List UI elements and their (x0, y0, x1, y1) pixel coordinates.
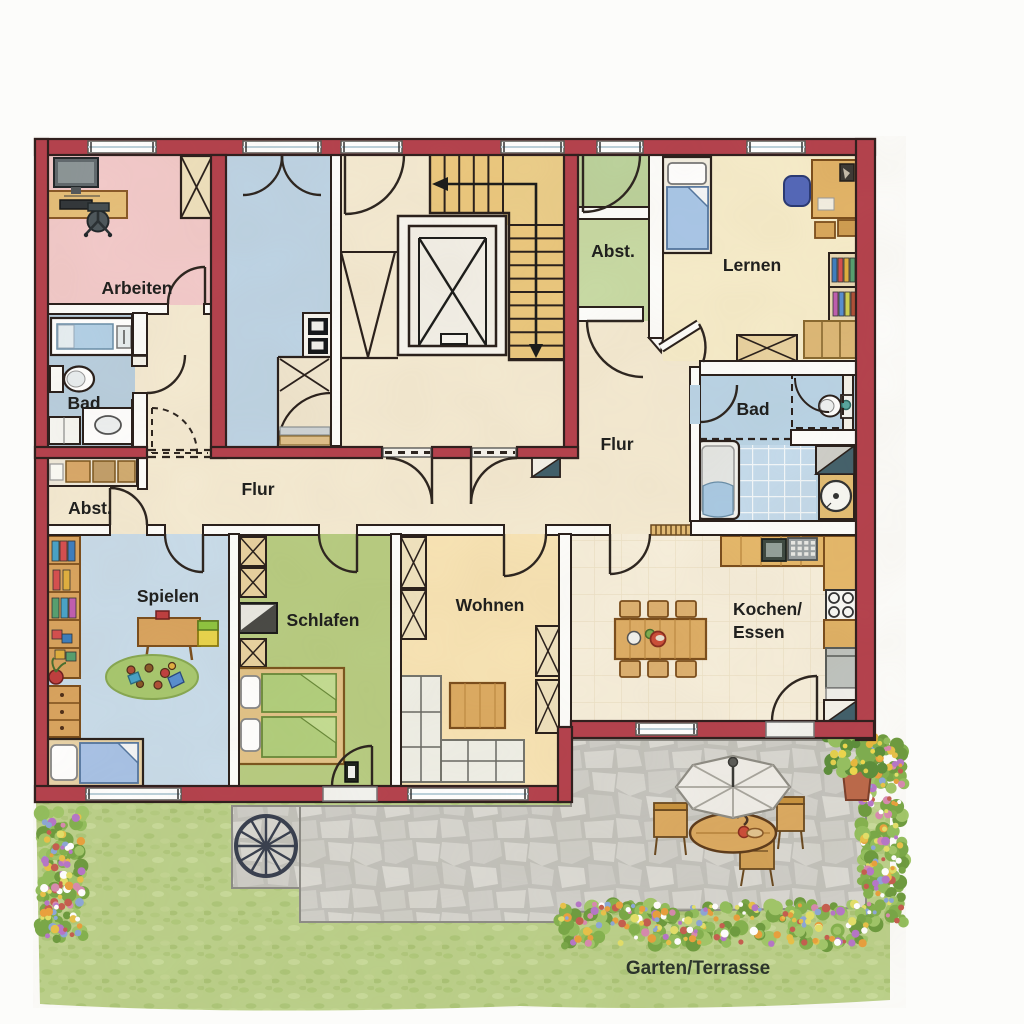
svg-text:Kochen/: Kochen/ (733, 599, 802, 619)
svg-text:Wohnen: Wohnen (456, 595, 525, 615)
svg-text:Flur: Flur (600, 434, 633, 454)
svg-text:Flur: Flur (241, 479, 274, 499)
svg-text:Abst.: Abst. (68, 498, 112, 518)
svg-text:Bad: Bad (67, 393, 100, 413)
svg-text:Arbeiten: Arbeiten (102, 278, 173, 298)
svg-text:Spielen: Spielen (137, 586, 199, 606)
svg-text:Lernen: Lernen (723, 255, 781, 275)
svg-text:Schlafen: Schlafen (287, 610, 360, 630)
svg-text:Abst.: Abst. (591, 241, 635, 261)
svg-text:Bad: Bad (736, 399, 769, 419)
svg-text:Essen: Essen (733, 622, 785, 642)
